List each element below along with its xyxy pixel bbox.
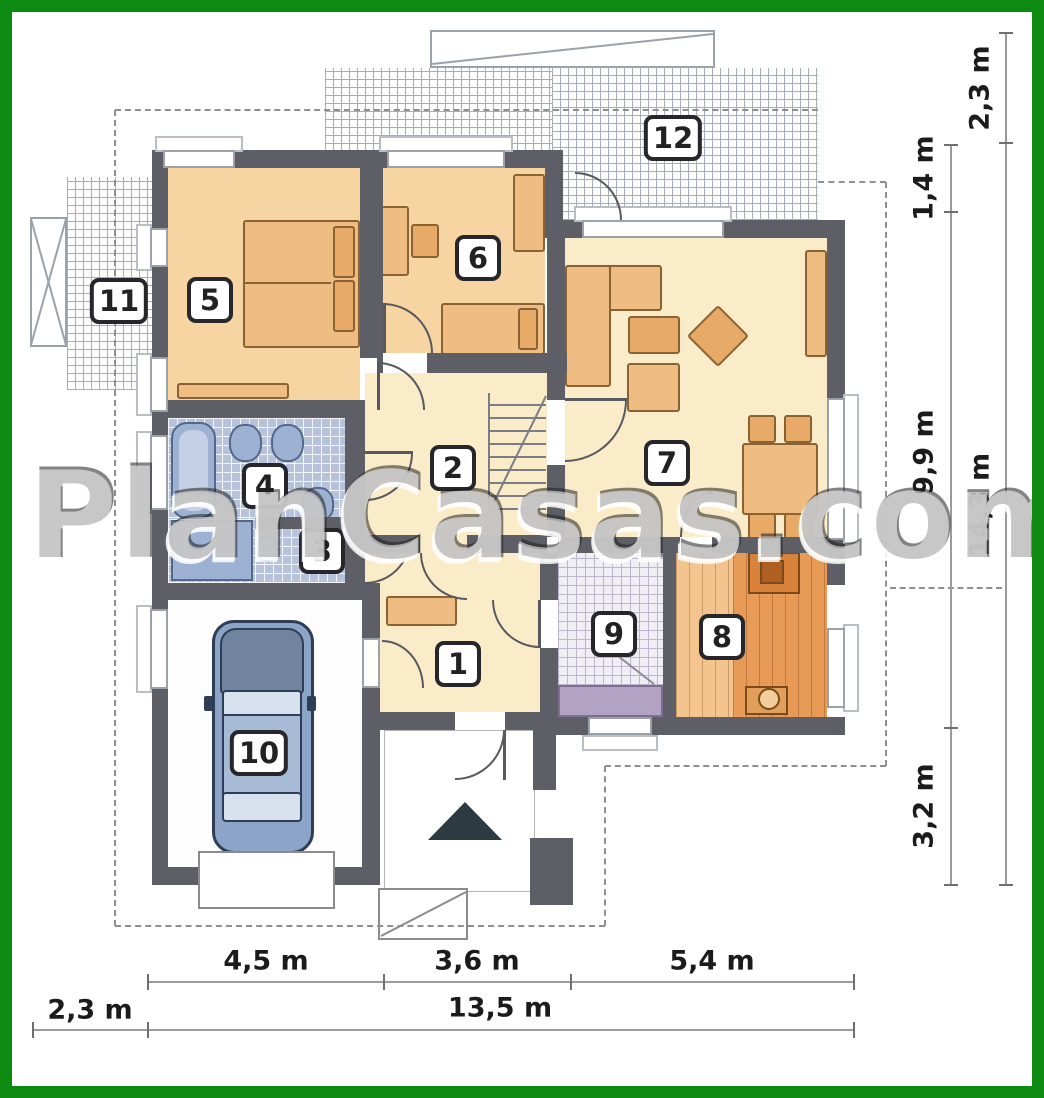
room-label-6: 6 — [455, 235, 501, 281]
tick — [147, 1022, 149, 1038]
terrace-window — [582, 220, 724, 238]
wall — [827, 540, 845, 585]
dim-label-3-2: 3,2 m — [909, 763, 940, 848]
dimension-line-right-outer — [1005, 33, 1007, 885]
tick — [999, 32, 1013, 34]
wall — [540, 717, 845, 735]
dim-label-3-6: 3,6 m — [434, 946, 519, 977]
wall — [533, 712, 556, 790]
window — [150, 609, 168, 689]
room-label-2: 2 — [430, 445, 476, 491]
window-sill — [582, 735, 658, 751]
wall — [547, 465, 565, 537]
tick — [570, 974, 572, 990]
door-leaf — [365, 451, 413, 454]
wall — [360, 168, 383, 358]
door-leaf — [538, 600, 541, 648]
window — [163, 150, 235, 168]
dim-label-9-9: 9,9 m — [909, 409, 940, 494]
dim-label-5-4: 5,4 m — [669, 946, 754, 977]
wall — [467, 535, 547, 553]
terrace-door — [150, 357, 168, 412]
window — [827, 398, 845, 540]
wall — [152, 400, 365, 418]
tick — [999, 884, 1013, 886]
door-leaf — [377, 362, 380, 410]
room-label-8: 8 — [699, 614, 745, 660]
wall — [547, 238, 565, 400]
dim-label-14-3: 14,3 m — [965, 453, 996, 557]
window-sill — [843, 624, 859, 712]
dim-label-2-3-bottom: 2,3 m — [47, 995, 132, 1026]
wall — [368, 712, 455, 730]
window-sill — [843, 394, 859, 544]
window — [387, 150, 505, 168]
room-label-7: 7 — [644, 440, 690, 486]
tick — [853, 1022, 855, 1038]
wall — [362, 583, 380, 885]
wall — [505, 712, 533, 730]
window — [150, 435, 168, 510]
window — [588, 717, 652, 735]
tick — [944, 144, 958, 146]
wall — [540, 553, 558, 600]
garage-hall-door-gap — [362, 638, 380, 688]
floor-plan-canvas: 1 2 3 4 5 6 7 8 9 10 11 12 PlanCasas.com… — [0, 0, 1044, 1098]
tick — [383, 974, 385, 990]
dim-label-4-5: 4,5 m — [223, 946, 308, 977]
room-label-3: 3 — [299, 528, 345, 574]
room-label-1: 1 — [435, 641, 481, 687]
dim-label-1-4: 1,4 m — [909, 135, 940, 220]
wall — [827, 238, 845, 398]
dimension-line-bottom-2 — [33, 1029, 854, 1031]
tick — [999, 142, 1013, 144]
room-label-12: 12 — [644, 115, 702, 161]
tick — [944, 211, 958, 213]
wall — [712, 537, 845, 553]
wall — [152, 583, 380, 600]
garage-door — [198, 851, 335, 909]
room-label-10: 10 — [230, 730, 288, 776]
tick — [853, 974, 855, 990]
dim-label-2-3-right: 2,3 m — [965, 45, 996, 130]
room-label-11: 11 — [90, 278, 148, 324]
dim-label-13-5: 13,5 m — [448, 993, 552, 1024]
wall — [558, 537, 680, 553]
window — [150, 228, 168, 267]
tick — [147, 974, 149, 990]
door-leaf — [565, 398, 627, 401]
dimension-line-right-inner — [950, 145, 952, 885]
tick — [944, 727, 958, 729]
wall — [345, 400, 365, 600]
window — [827, 628, 845, 708]
room-label-5: 5 — [187, 277, 233, 323]
tick — [944, 884, 958, 886]
wall — [663, 553, 676, 717]
door-leaf — [383, 303, 386, 353]
porch-pillar — [530, 838, 573, 905]
tick — [32, 1022, 34, 1038]
wall — [427, 353, 567, 373]
door-leaf — [503, 730, 506, 780]
room-label-9: 9 — [591, 611, 637, 657]
room-label-4: 4 — [242, 463, 288, 509]
dimension-line-bottom-1 — [148, 981, 854, 983]
